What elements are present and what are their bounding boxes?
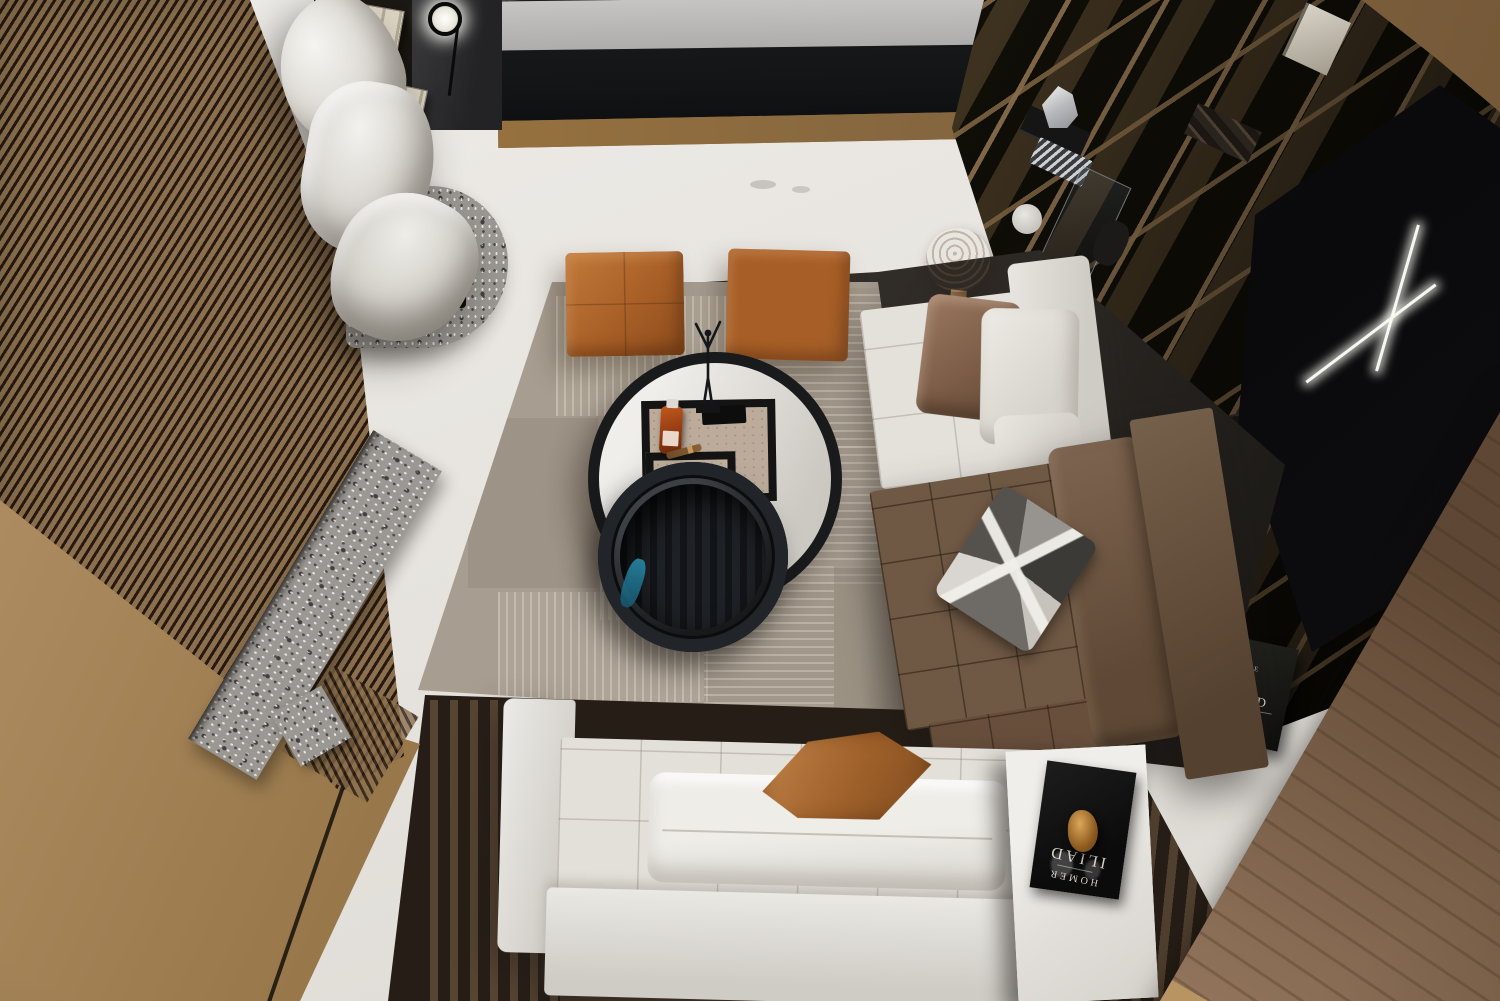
bottle-label (662, 431, 679, 447)
bottle-cap (666, 399, 678, 409)
figurine-sculpture (690, 316, 726, 416)
leather-pouf-left (565, 251, 685, 357)
floor-smudge (792, 186, 810, 193)
abstract-white-sculpture (232, 0, 482, 346)
whiskey-bottle (659, 405, 683, 454)
living-room-scene: THE ♘ ILIAD HOMER (0, 0, 1500, 1001)
table-iliad-book: HOMER ILIAD (1030, 760, 1137, 899)
cigar-band (687, 446, 694, 454)
black-cylinder-table (598, 462, 788, 652)
sofa-front-rail (544, 887, 1051, 1001)
white-disc-object (1012, 204, 1042, 234)
leather-pouf-right (726, 248, 851, 361)
floor-smudge (750, 180, 776, 189)
bronze-lion-figure (1068, 810, 1098, 852)
cushion-seam (663, 829, 992, 840)
cylinder-interior (620, 484, 766, 630)
